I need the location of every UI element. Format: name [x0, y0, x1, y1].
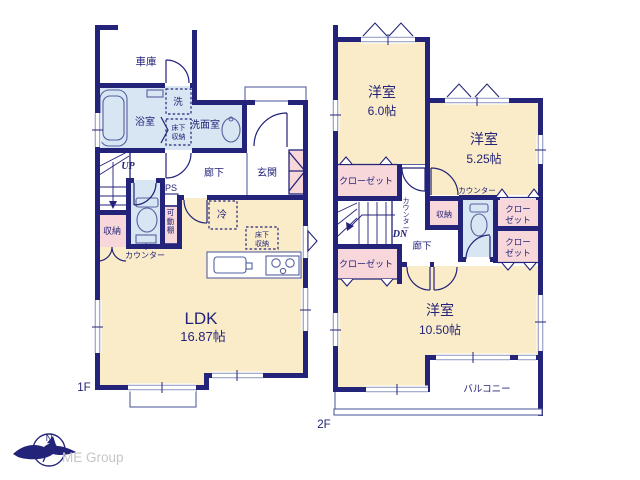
washer-label: 洗 [173, 96, 183, 108]
window-2f-left-lower [330, 313, 341, 346]
window-2f-left-upper [330, 100, 341, 131]
window-2f-right-upper [535, 135, 546, 164]
window-2f-bottom-left [366, 384, 428, 395]
entrance-porch [245, 87, 306, 101]
balcony-label: バルコニー [463, 384, 510, 395]
bedroom-b-label: 洋室 [470, 131, 498, 147]
hallway1-label: 廊下 [204, 166, 224, 179]
bedroom-b-area [430, 103, 538, 195]
bedroom-c-size-label: 10.50帖 [419, 322, 461, 337]
storage1-label: 収納 [103, 225, 121, 236]
hallway2-label: 廊下 [412, 240, 431, 252]
bath-label: 浴室 [135, 115, 155, 128]
toilet-counter-label: カウンター [125, 251, 165, 260]
floor2-label: 2F [317, 419, 330, 431]
entrance-label: 玄関 [257, 166, 277, 179]
ldk-underfloor-label-1: 床下 [255, 230, 269, 239]
window-2f-right-lower [535, 295, 546, 351]
logo: N ME Group [13, 433, 124, 466]
balcony-rail [334, 409, 542, 415]
underfloor-label-2: 収納 [172, 132, 186, 141]
dn-arrow-head [346, 222, 354, 231]
closet-c-label-2: ゼット [505, 215, 531, 225]
brand-label: ME Group [62, 450, 124, 465]
window-ldk-bottom-right [212, 370, 263, 381]
window-2f-bottom-b [518, 354, 536, 362]
window-ldk-left [92, 300, 103, 353]
ps-shaft [164, 194, 178, 206]
ldk-size-label: 16.87帖 [180, 329, 226, 344]
floor1-label: 1F [77, 382, 90, 394]
closet-d-label-2: ゼット [505, 248, 531, 258]
closet-a-label: クローゼット [339, 175, 393, 186]
window-2f-top-a [361, 23, 415, 45]
movable-shelf-label: 可動棚 [167, 208, 175, 235]
garage-washroom-door [166, 60, 189, 83]
storage2-label: 収納 [436, 209, 452, 219]
window-ldk-right-upper [302, 226, 318, 258]
bedroom-b-size-label: 5.25帖 [466, 151, 501, 166]
window-ldk-bottom-left [128, 382, 196, 393]
hall-counter-label: カウンター [403, 197, 410, 233]
ldk-underfloor-label-2: 収納 [255, 239, 269, 248]
bedroom-a-size-label: 6.0帖 [368, 103, 397, 118]
underfloor-label-1: 床下 [172, 123, 186, 132]
bedroom-a-label: 洋室 [368, 84, 396, 100]
washroom-label: 洗面室 [190, 118, 220, 131]
closet-b-label: クローゼット [339, 258, 393, 269]
up-label: UP [121, 161, 135, 172]
closet-d-area [498, 231, 538, 263]
floorplan-drawing: 車庫 浴室 洗 洗面室 床下 収納 廊下 玄関 UP PS 可動棚 収納 カウン… [0, 0, 640, 480]
ldk-label: LDK [184, 309, 218, 328]
closet-c-label-1: クロー [505, 204, 531, 214]
garage-label: 車庫 [136, 55, 157, 68]
balcony [334, 392, 542, 415]
compass-north-label: N [46, 433, 53, 444]
bedroom-a-door [402, 168, 425, 191]
stairs-2f [338, 201, 395, 247]
terrace-step [130, 390, 196, 407]
window-2f-top-b [445, 84, 509, 106]
ps-label: PS [165, 183, 177, 193]
bedroom-a-area [338, 42, 425, 164]
floorplan-page: 車庫 浴室 洗 洗面室 床下 収納 廊下 玄関 UP PS 可動棚 収納 カウン… [0, 0, 640, 480]
toilet1-area [128, 180, 163, 247]
front-door [254, 113, 287, 147]
washroom-door [166, 153, 191, 178]
window-2f-bottom-a [436, 352, 510, 363]
bedroom-c-label: 洋室 [426, 302, 454, 318]
fridge-label: 冷 [217, 208, 227, 221]
closet-d-label-1: クロー [505, 237, 531, 247]
window-bath-left [92, 113, 103, 147]
counter2-label: カウンター [458, 186, 496, 195]
window-ldk-right-lower [300, 288, 311, 331]
